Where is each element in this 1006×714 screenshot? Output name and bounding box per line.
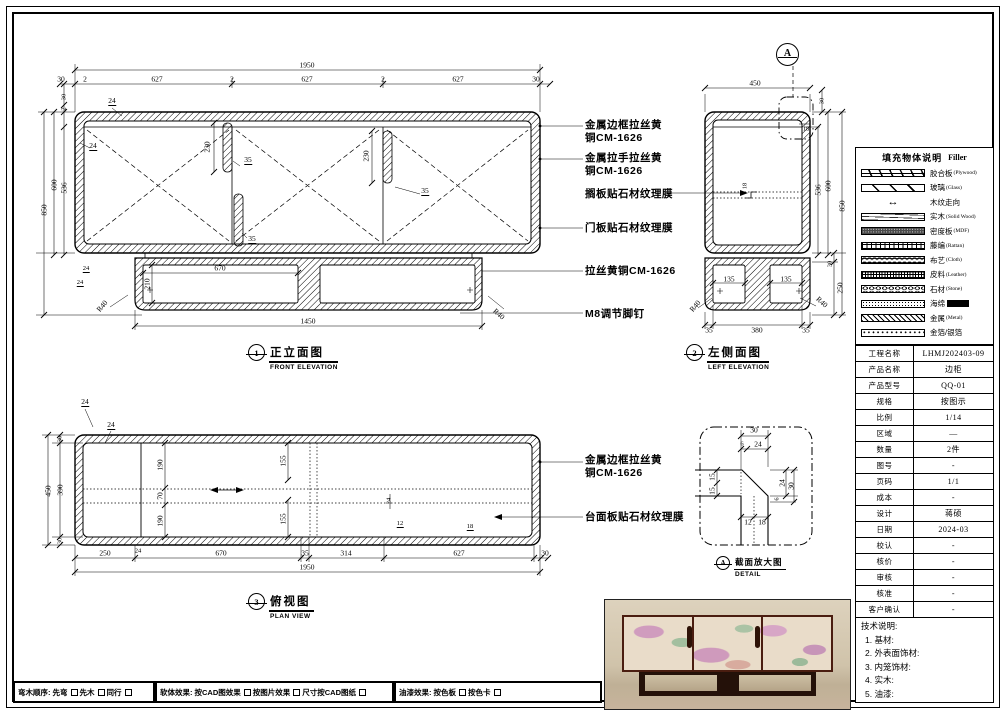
front-elevation-drawing: [36, 64, 583, 330]
dim-front-600: 600: [50, 179, 59, 190]
callout-plan-metal-frame-line2: 铜CM-1626: [585, 465, 643, 480]
option-label: 按CAD图效果: [195, 687, 241, 698]
filler-legend-panel: 填充物体说明 Filler 胶合板(Plywood) 玻璃(Glass) ↔木纹…: [855, 147, 994, 345]
table-row: 产品型号QQ-01: [856, 378, 993, 394]
view-subtitle-text: LEFT ELEVATION: [707, 363, 769, 371]
front-view-title: 1 正立面图FRONT ELEVATION: [248, 344, 338, 371]
callout-m8-foot: M8调节脚钉: [585, 306, 645, 321]
row-value: LHMJ202403-09: [914, 346, 993, 361]
row-value: —: [914, 426, 993, 441]
checkbox: [494, 689, 501, 696]
paint-effect-group: 油漆效果: 按色板 按色卡: [394, 681, 602, 703]
dim-plan-70: 70: [156, 492, 165, 500]
dim-left-536: 536: [814, 184, 823, 195]
table-row: 设计蒋硕: [856, 506, 993, 522]
legend-item-en: (Plywood): [954, 170, 977, 176]
table-row: 审核-: [856, 570, 993, 586]
group-label: 弯木顺序:: [18, 687, 51, 698]
legend-item-en: (MDF): [954, 228, 970, 234]
row-label: 日期: [856, 522, 914, 537]
dim-front-base24: 24: [83, 265, 90, 273]
view-subtitle-text: PLAN VIEW: [269, 612, 314, 620]
option-label: 先木: [80, 687, 95, 698]
legend-item: 海绵: [856, 297, 993, 312]
legend-item-label: 金箔/银箔: [930, 327, 962, 338]
dim-front-handle35: 35: [244, 155, 252, 165]
dim-plan-total: 1950: [300, 563, 315, 572]
dim-left-600: 600: [824, 180, 833, 191]
dim-left-18: 18: [803, 126, 810, 133]
row-value: 蒋硕: [914, 506, 993, 521]
photo-handle: [755, 626, 760, 648]
tech-note-line: 5. 油漆:: [861, 688, 988, 702]
legend-item-label: 藤编: [930, 240, 945, 251]
technical-notes-panel: 技术说明: 1. 基材: 2. 外表面饰材: 3. 内笼饰材: 4. 实木: 5…: [855, 617, 994, 703]
legend-item-en: (Glass): [946, 185, 962, 191]
dim-plan-155: 155: [279, 513, 288, 524]
table-row: 客户确认-: [856, 602, 993, 617]
dim-plan-bottom: 35: [301, 549, 309, 558]
dim-plan-bottom: 24: [135, 548, 142, 555]
tech-note-line: 3. 内笼饰材:: [861, 661, 988, 675]
legend-item-label: 玻璃: [930, 182, 945, 193]
view-number-marker: A: [716, 556, 730, 570]
row-label: 校认: [856, 538, 914, 553]
tech-note-line: 2. 外表面饰材:: [861, 647, 988, 661]
dim-front-handle35: 35: [421, 186, 429, 196]
dim-detail-12: 12: [744, 518, 752, 527]
front-handle-2: [234, 194, 243, 246]
legend-item-label: 实木: [930, 211, 945, 222]
dim-detail-18: 18: [758, 518, 766, 527]
leather-pattern-swatch: [861, 271, 925, 279]
dim-front-panel24: 24: [89, 141, 97, 151]
row-label: 核价: [856, 554, 914, 569]
dim-left-850: 850: [838, 200, 847, 211]
row-value: 2024-03: [914, 522, 993, 537]
row-value: 2件: [914, 442, 993, 457]
legend-item-label: 木纹走向: [930, 197, 960, 208]
callout-door-stone-film: 门板贴石材纹理膜: [585, 220, 673, 235]
view-number-marker: 2: [686, 344, 703, 361]
row-label: 区域: [856, 426, 914, 441]
grain-direction-arrow-icon: ↔: [861, 198, 925, 206]
legend-item: 布艺(Cloth): [856, 253, 993, 268]
photo-base-opening: [739, 675, 811, 691]
table-row: 工程名称LHMJ202403-09: [856, 346, 993, 362]
glass-pattern-swatch: [861, 184, 925, 192]
row-value: 1/1: [914, 474, 993, 489]
view-title-text: 正立面图: [269, 344, 338, 363]
dim-front-top-seg: 627: [452, 75, 463, 84]
dim-plan-190: 190: [156, 459, 165, 470]
dim-left-top30: 30: [819, 98, 826, 105]
table-row: 规格按图示: [856, 394, 993, 410]
dim-front-1450: 1450: [301, 317, 316, 326]
view-title-text: 左侧面图: [707, 344, 769, 363]
callout-metal-handle-line2: 铜CM-1626: [585, 163, 643, 178]
dim-front-total-width: 1950: [300, 61, 315, 70]
view-number-marker: 1: [248, 344, 265, 361]
dim-front-850: 850: [40, 204, 49, 215]
table-row: 页码1/1: [856, 474, 993, 490]
dim-front-top-seg: 627: [151, 75, 162, 84]
dim-plan-24: 24: [107, 420, 115, 430]
legend-item-en: (Cloth): [946, 257, 962, 263]
front-cabinet-inner: [84, 121, 531, 244]
photo-door-divider: [761, 617, 763, 670]
front-handle-1: [223, 123, 232, 172]
dim-left-135: 135: [723, 275, 734, 284]
row-value: QQ-01: [914, 378, 993, 393]
table-row: 数量2件: [856, 442, 993, 458]
legend-item: 金属(Metal): [856, 311, 993, 326]
table-row: 核准-: [856, 586, 993, 602]
photo-handle: [687, 626, 692, 648]
front-base-opening-2: [320, 265, 475, 303]
checkbox: [125, 689, 132, 696]
sponge-highlight-bar: [947, 300, 969, 307]
dim-detail-30r: 30: [787, 482, 796, 490]
left-base-opening-1: [713, 265, 745, 303]
checkbox: [244, 689, 251, 696]
dim-plan-12: 12: [397, 520, 404, 528]
legend-item: 胶合板(Plywood): [856, 166, 993, 181]
dim-detail-6: 6: [740, 441, 743, 448]
row-label: 成本: [856, 490, 914, 505]
view-title-text: 截面放大图: [734, 556, 786, 570]
sponge-pattern-swatch: [861, 300, 925, 308]
dim-left-250: 250: [836, 282, 845, 293]
dim-detail-30: 30: [750, 426, 758, 435]
left-view-title: 2 左侧面图LEFT ELEVATION: [686, 344, 769, 371]
row-label: 审核: [856, 570, 914, 585]
view-number-marker: 3: [248, 593, 265, 610]
bentwood-order-group: 弯木顺序: 先弯 先木 同行: [13, 681, 155, 703]
dim-plan-bottom: 314: [340, 549, 351, 558]
plywood-pattern-swatch: [861, 169, 925, 177]
option-label: 同行: [107, 687, 122, 698]
checkbox: [293, 689, 300, 696]
callout-shelf-stone-film: 搁板贴石材纹理膜: [585, 186, 673, 201]
dim-left-450: 450: [749, 79, 760, 88]
row-label: 设计: [856, 506, 914, 521]
checkbox: [98, 689, 105, 696]
legend-item-en: (Metal): [946, 315, 963, 321]
row-label: 工程名称: [856, 346, 914, 361]
dim-front-670: 670: [214, 264, 225, 273]
table-row: 图号-: [856, 458, 993, 474]
legend-title: 填充物体说明: [882, 151, 942, 164]
dim-left-bottom380: 380: [751, 326, 762, 335]
photo-cabinet-body: [622, 615, 833, 672]
table-row: 比例1/14: [856, 410, 993, 426]
tech-notes-title: 技术说明:: [861, 620, 988, 634]
legend-item: 密度板(MDF): [856, 224, 993, 239]
row-value: 边柜: [914, 362, 993, 377]
dim-front-top-seg: 627: [301, 75, 312, 84]
table-row: 成本-: [856, 490, 993, 506]
dim-left-shelf18: 18: [742, 183, 749, 190]
mdf-pattern-swatch: [861, 227, 925, 235]
section-marker-a: A: [776, 43, 799, 66]
row-label: 客户确认: [856, 602, 914, 617]
legend-item-label: 胶合板: [930, 168, 953, 179]
legend-item: 玻璃(Glass): [856, 181, 993, 196]
detail-profile-lines: [695, 470, 768, 545]
legend-item: 石材(Stone): [856, 282, 993, 297]
dim-front-top30: 30: [61, 94, 68, 101]
checkbox: [459, 689, 466, 696]
dim-plan-18: 18: [467, 523, 474, 531]
table-row: 区域—: [856, 426, 993, 442]
cloth-pattern-swatch: [861, 256, 925, 264]
legend-item-label: 布艺: [930, 255, 945, 266]
dim-plan-30: 30: [57, 436, 64, 443]
callout-metal-frame-line2: 铜CM-1626: [585, 130, 643, 145]
detail-view-title: A 截面放大图DETAIL: [716, 556, 786, 578]
rattan-pattern-swatch: [861, 242, 925, 250]
legend-item: 皮料(Leather): [856, 268, 993, 283]
dim-front-536: 536: [60, 182, 69, 193]
metal-pattern-swatch: [861, 314, 925, 322]
dim-detail-15: 15: [708, 487, 717, 495]
legend-item-label: 金属: [930, 313, 945, 324]
row-value: 1/14: [914, 410, 993, 425]
photo-center-leg: [722, 672, 732, 696]
dim-plan-155: 155: [279, 455, 288, 466]
row-label: 比例: [856, 410, 914, 425]
dim-plan-bottom: 670: [215, 549, 226, 558]
dim-plan-bottom: 627: [453, 549, 464, 558]
plan-inner: [83, 443, 532, 537]
option-label: 按色卡: [468, 687, 491, 698]
photo-base-opening: [645, 675, 717, 691]
row-value: -: [914, 538, 993, 553]
stone-pattern-swatch: [861, 285, 925, 293]
row-value: -: [914, 458, 993, 473]
dim-front-top-seg: 2: [381, 75, 385, 84]
tech-note-line: 1. 基材:: [861, 634, 988, 648]
legend-item-en: (Leather): [946, 272, 966, 278]
table-row: 校认-: [856, 538, 993, 554]
dim-front-210: 210: [143, 278, 152, 289]
legend-title-en: Filler: [948, 153, 967, 162]
checkbox: [71, 689, 78, 696]
row-value: -: [914, 570, 993, 585]
dim-front-top-seg: 2: [83, 75, 87, 84]
left-elevation-drawing: [668, 66, 846, 329]
row-label: 数量: [856, 442, 914, 457]
dim-left-bottom35: 35: [802, 326, 810, 335]
dim-plan-24c: 24: [386, 498, 393, 505]
dim-front-panel24: 24: [108, 96, 116, 106]
dim-plan-390: 390: [56, 484, 65, 495]
legend-item-label: 海绵: [930, 298, 945, 309]
table-row: 产品名称边柜: [856, 362, 993, 378]
group-label: 软体效果:: [160, 687, 193, 698]
row-label: 产品型号: [856, 378, 914, 393]
dim-detail-15: 15: [708, 473, 717, 481]
view-title-text: 俯视图: [269, 593, 314, 612]
legend-item: 金箔/银箔: [856, 326, 993, 341]
callout-brushed-brass: 拉丝黄铜CM-1626: [585, 263, 676, 278]
legend-item-label: 密度板: [930, 226, 953, 237]
row-label: 页码: [856, 474, 914, 489]
dim-plan-450: 450: [44, 485, 53, 496]
row-value: 按图示: [914, 394, 993, 409]
front-handle-3: [383, 131, 392, 183]
dim-detail-6r: 6: [774, 497, 781, 500]
option-label: 按图片效果: [253, 687, 291, 698]
dim-detail-24r: 24: [778, 479, 787, 487]
dim-front-handle230: 230: [203, 141, 212, 152]
legend-item-label: 石材: [930, 284, 945, 295]
option-label: 先弯: [53, 687, 68, 698]
legend-item: 藤编(Rattan): [856, 239, 993, 254]
dim-plan-190: 190: [156, 515, 165, 526]
option-label: 按色板: [434, 687, 457, 698]
dim-front-handle35: 35: [248, 234, 256, 244]
dim-front-top2: 2: [61, 107, 68, 110]
dim-left-base30: 30: [827, 261, 834, 268]
legend-item-en: (Rattan): [946, 243, 964, 249]
dim-plan-bottom: 250: [99, 549, 110, 558]
upholstery-effect-group: 软体效果: 按CAD图效果 按图片效果 尺寸按CAD图纸: [155, 681, 394, 703]
row-value: -: [914, 554, 993, 569]
dim-front-handle230: 230: [362, 150, 371, 161]
section-marker-a-label: A: [784, 48, 791, 59]
legend-item: ↔木纹走向: [856, 195, 993, 210]
dim-front-base24: 24: [77, 279, 84, 287]
dim-plan-30: 30: [57, 538, 64, 545]
dim-plan-24: 24: [81, 397, 89, 407]
group-label: 油漆效果:: [399, 687, 432, 698]
legend-item-en: (Stone): [946, 286, 962, 292]
callout-countertop-stone-film: 台面板贴石材纹理膜: [585, 509, 684, 524]
dim-front-top-seg: 30: [57, 75, 65, 84]
photo-door-divider: [692, 617, 694, 670]
option-label: 尺寸按CAD图纸: [302, 687, 356, 698]
tech-note-line: 4. 实木:: [861, 674, 988, 688]
detail-extension-lines: [741, 430, 798, 502]
row-label: 产品名称: [856, 362, 914, 377]
row-label: 核准: [856, 586, 914, 601]
left-base-opening-2: [770, 265, 802, 303]
row-label: 图号: [856, 458, 914, 473]
legend-item-label: 皮料: [930, 269, 945, 280]
dim-front-top-seg: 2: [230, 75, 234, 84]
photo-cabinet-base: [639, 672, 816, 696]
row-label: 规格: [856, 394, 914, 409]
dim-left-bottom35: 35: [705, 326, 713, 335]
row-value: -: [914, 602, 993, 617]
checkbox: [359, 689, 366, 696]
dim-detail-24: 24: [754, 440, 762, 449]
detail-hidden-lines: [741, 472, 754, 545]
product-render-photo: [604, 599, 851, 710]
left-cabinet-inner: [713, 120, 802, 245]
gold-foil-pattern-swatch: [861, 329, 925, 337]
table-row: 日期2024-03: [856, 522, 993, 538]
row-value: -: [914, 586, 993, 601]
dim-front-top-seg: 30: [532, 75, 540, 84]
plan-view-drawing: [42, 409, 583, 576]
row-value: -: [914, 490, 993, 505]
legend-title-row: 填充物体说明 Filler: [856, 148, 993, 166]
view-subtitle-text: FRONT ELEVATION: [269, 363, 338, 371]
title-block-table: 工程名称LHMJ202403-09 产品名称边柜 产品型号QQ-01 规格按图示…: [855, 345, 994, 618]
solid-wood-pattern-swatch: [861, 213, 925, 221]
table-row: 核价-: [856, 554, 993, 570]
legend-item: 实木(Solid Wood): [856, 210, 993, 225]
view-subtitle-text: DETAIL: [734, 570, 786, 578]
legend-item-en: (Solid Wood): [946, 214, 976, 220]
dim-plan-bottom: 30: [541, 549, 549, 558]
plan-view-title: 3 俯视图PLAN VIEW: [248, 593, 314, 620]
cad-drawing-sheet: 1950 30 2 627 2 627 2 627 30 850 600 536…: [0, 0, 1006, 714]
dim-left-135: 135: [780, 275, 791, 284]
